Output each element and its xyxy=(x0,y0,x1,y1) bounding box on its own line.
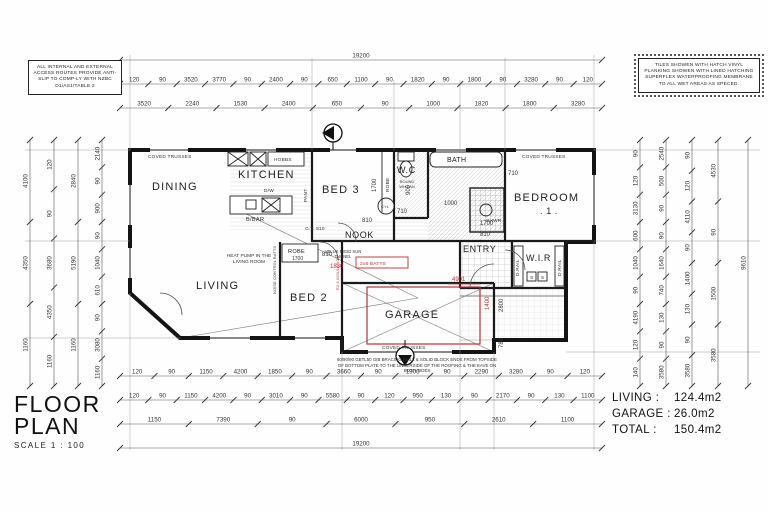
dim-1700-robe: 1700 xyxy=(372,178,378,192)
dim-value: 3770 xyxy=(212,77,226,84)
tiles-note: TILES SHOWEN WITH HATCH VINYL PLANKING S… xyxy=(638,58,760,93)
dim-value: 1500 xyxy=(711,286,718,300)
dim-value: 90 xyxy=(711,228,718,235)
dim-value: 2140 xyxy=(95,146,102,160)
dim-810-b: 810 xyxy=(362,218,373,224)
dim-value: 90 xyxy=(659,204,666,211)
extension-lines xyxy=(25,55,760,450)
dim-1000: 1000 xyxy=(444,201,458,207)
area-row-living: LIVING : 124.4m2 xyxy=(612,392,722,404)
dim-value: 3580 xyxy=(659,365,666,379)
drail-right-label: D.RAIL xyxy=(557,259,563,276)
dim-value: 90 xyxy=(244,77,251,84)
area-row-garage: GARAGE : 26.0m2 xyxy=(612,408,722,420)
dim-value: 120 xyxy=(580,369,591,376)
dim-value: 90 xyxy=(95,232,102,239)
breakfast-bar xyxy=(230,196,292,214)
dim-value: 3280 xyxy=(524,77,538,84)
dim-value: 90 xyxy=(159,393,166,400)
dim-value: 140 xyxy=(633,367,640,378)
dim-value: 1400 xyxy=(685,271,692,285)
dim-value: 90 xyxy=(244,393,251,400)
dim-value: 6000 xyxy=(354,417,368,424)
dim-value: 3580 xyxy=(711,348,718,362)
dim-value: 4100 xyxy=(23,174,30,188)
dim-value: 4530 xyxy=(711,163,718,177)
room-label-bath: BATH xyxy=(447,157,466,164)
dim-value: 90 xyxy=(358,393,365,400)
garage-area-label: GARAGE : xyxy=(612,408,674,420)
room-label-dining: DINING xyxy=(152,181,198,193)
robe-bed2-dim: 1700 xyxy=(292,256,303,262)
dim-value: 90 xyxy=(659,341,666,348)
dim-value: 650 xyxy=(327,77,338,84)
room-label-bed2: BED 2 xyxy=(290,292,328,304)
dim-value: 4110 xyxy=(685,210,692,224)
dim-value: 120 xyxy=(129,77,140,84)
dim-value: 90 xyxy=(159,77,166,84)
page-title: FLOOR PLAN xyxy=(14,394,114,438)
dim-value: 1850 xyxy=(268,369,282,376)
dim-value: 1160 xyxy=(23,338,30,352)
dim-value: 1040 xyxy=(95,256,102,270)
dim-value: 5190 xyxy=(71,256,78,270)
dim-value: 3580 xyxy=(685,363,692,377)
dim-780: 780 xyxy=(499,337,505,348)
dim-value: 120 xyxy=(129,393,140,400)
insulation-label: R2.6 INSULATION xyxy=(336,255,340,290)
dim-value: 3280 xyxy=(571,101,585,108)
dim-value: 3520 xyxy=(137,101,151,108)
dim-value: 120 xyxy=(384,393,395,400)
coved-trusses-label-1: COVED TRUSSES xyxy=(148,154,192,160)
toilet-cistern xyxy=(398,152,414,161)
dim-value: 120 xyxy=(633,339,640,350)
dim-value: 2840 xyxy=(71,174,78,188)
dim-value: 4350 xyxy=(23,256,30,270)
robe-bed3-label: ROBE xyxy=(385,178,391,192)
dim-value: 3520 xyxy=(184,77,198,84)
wh-fan-note: ROUND WH FAN xyxy=(396,179,418,189)
area-row-total: TOTAL : 150.4m2 xyxy=(612,424,722,436)
dim-value: 2170 xyxy=(496,393,510,400)
dim-value: 1800 xyxy=(468,77,482,84)
porch-lines xyxy=(460,288,566,340)
dim-value: 90 xyxy=(289,417,296,424)
dim-value: 90 xyxy=(547,369,554,376)
noise-batts-label: NOISE CONTROL BATTS xyxy=(273,246,277,294)
dim-value: 1160 xyxy=(71,338,78,352)
dim-value: 9610 xyxy=(741,256,748,270)
dim-value: 120 xyxy=(132,369,143,376)
room-label-wc: W.C xyxy=(397,165,416,175)
coved-trusses-label-2: COVED TRUSSES xyxy=(522,154,566,160)
dim-value: 1100 xyxy=(354,77,368,84)
dim-value: 90 xyxy=(95,177,102,184)
dim-value: 1150 xyxy=(199,369,213,376)
dim-value: 90 xyxy=(306,369,313,376)
dim-value: 90 xyxy=(443,77,450,84)
hobbs-label: HOBBS xyxy=(274,157,292,163)
room-label-entry: ENTRY xyxy=(463,244,496,254)
dim-value: 120 xyxy=(47,159,54,170)
floor-plan-sheet: 1920012090352037709024009065011009018209… xyxy=(0,0,768,512)
dim-value: 90 xyxy=(386,77,393,84)
dim-value: 90 xyxy=(95,314,102,321)
dim-value: 130 xyxy=(441,393,452,400)
dim-value: 120 xyxy=(583,77,594,84)
dim-value: 130 xyxy=(659,312,666,323)
dim-value: 90 xyxy=(471,393,478,400)
access-note: ALL INTERNAL AND EXTERNAL ACCESS ROUTES … xyxy=(28,60,122,95)
dim-value: 90 xyxy=(47,210,54,217)
dim-value: 1150 xyxy=(184,393,198,400)
dim-value: 130 xyxy=(554,393,565,400)
room-label-wir: W.I.R xyxy=(526,253,551,263)
total-area-value: 150.4m2 xyxy=(674,424,722,436)
dim-value: 120 xyxy=(685,180,692,191)
dim-value: 3080 xyxy=(95,338,102,352)
dim-4901-red: 4901 xyxy=(452,277,466,283)
robe-bed2-label: ROBE xyxy=(288,249,305,255)
dim-value: 19200 xyxy=(352,441,370,448)
dim-value: 3130 xyxy=(633,201,640,215)
total-area-label: TOTAL : xyxy=(612,424,674,436)
room-label-garage: GARAGE xyxy=(385,309,439,321)
dim-value: 610 xyxy=(95,285,102,296)
dim-1700-shower: 1700 xyxy=(480,221,494,227)
garage-bracing-note: 50/90/90 GBTL50 GIB BRACING WALL & SOLID… xyxy=(336,357,498,374)
dim-value: 1800 xyxy=(523,101,537,108)
dim-value: 900 xyxy=(95,203,102,214)
dim-value: 4200 xyxy=(212,393,226,400)
island-sink xyxy=(246,200,256,209)
living-area-value: 124.4m2 xyxy=(674,392,722,404)
dim-710-a: 710 xyxy=(397,209,408,215)
dim-value: 1640 xyxy=(659,256,666,270)
dim-value: 90 xyxy=(659,232,666,239)
dim-value: 130 xyxy=(685,303,692,314)
dim-value: 90 xyxy=(301,393,308,400)
dim-710-b: 710 xyxy=(508,171,519,177)
dim-value: 2540 xyxy=(659,146,666,160)
room-label-nook: NOOK xyxy=(345,230,374,240)
dim-value: 950 xyxy=(425,417,436,424)
dim-value: 1160 xyxy=(95,365,102,379)
dim-1400-red: 1400 xyxy=(485,296,491,310)
dim-value: 4190 xyxy=(633,310,640,324)
dim-1830-red: 1830 xyxy=(330,264,344,270)
room-label-bed3: BED 3 xyxy=(322,184,360,196)
dim-value: 90 xyxy=(382,101,389,108)
area-summary: LIVING : 124.4m2 GARAGE : 26.0m2 TOTAL :… xyxy=(612,392,722,440)
gt-810-label: G.T. 810 xyxy=(305,226,325,232)
dim-value: 90 xyxy=(499,77,506,84)
dim-value: 950 xyxy=(413,393,424,400)
dim-value: 3280 xyxy=(509,369,523,376)
dim-value: 1150 xyxy=(148,417,162,424)
dim-value: 3680 xyxy=(47,256,54,270)
dim-value: 600 xyxy=(633,230,640,241)
cyl-label: CYL xyxy=(381,204,390,209)
dim-value: 90 xyxy=(528,393,535,400)
velux-note: VELUX RIGID SUN TUNNEL xyxy=(324,249,362,260)
shelf-2-label: S xyxy=(541,275,544,281)
dim-value: 90 xyxy=(556,77,563,84)
dim-value: 2240 xyxy=(185,101,199,108)
dim-value: 2610 xyxy=(492,417,506,424)
dim-value: 1820 xyxy=(411,77,425,84)
dim-value: 4350 xyxy=(47,305,54,319)
room-label-bedroom1-number: . 1 . xyxy=(540,206,558,216)
dim-value: 740 xyxy=(659,285,666,296)
dim-value: 2400 xyxy=(282,101,296,108)
room-label-bedroom1: BEDROOM xyxy=(514,192,579,204)
dim-value: 1100 xyxy=(581,393,595,400)
dim-value: 4200 xyxy=(234,369,248,376)
dim-value: 2400 xyxy=(269,77,283,84)
dim-value: 1820 xyxy=(475,101,489,108)
dim-value: 500 xyxy=(659,175,666,186)
dw-label: D/W xyxy=(264,188,274,194)
pantry-label: PANT xyxy=(303,189,309,202)
coved-trusses-label-3: COVED TRUSSES xyxy=(382,345,426,351)
dim-2800: 2800 xyxy=(499,298,505,312)
dim-value: 90 xyxy=(168,369,175,376)
dim-value: 1000 xyxy=(426,101,440,108)
dim-value: 1100 xyxy=(561,417,575,424)
living-area-label: LIVING : xyxy=(612,392,674,404)
dim-value: 90 xyxy=(685,336,692,343)
dim-value: 1530 xyxy=(234,101,248,108)
bbar-label: B/BAR xyxy=(246,217,264,223)
dim-value: 120 xyxy=(633,175,640,186)
heat-pump-note: HEAT PUMP IN THE LIVING ROOM xyxy=(222,254,276,266)
dim-value: 90 xyxy=(301,77,308,84)
dim-810-c: 810 xyxy=(480,232,491,238)
dim-value: 90 xyxy=(685,151,692,158)
garage-area-value: 26.0m2 xyxy=(674,408,715,420)
dim-value: 5580 xyxy=(326,393,340,400)
dim-value: 650 xyxy=(332,101,343,108)
room-label-kitchen: KITCHEN xyxy=(238,169,295,181)
shelf-1-label: S xyxy=(530,275,533,281)
title-block: FLOOR PLAN SCALE 1 : 100 xyxy=(14,394,114,450)
dim-value: 90 xyxy=(633,286,640,293)
dim-value: 90 xyxy=(633,150,640,157)
dim-value: 7390 xyxy=(216,417,230,424)
drail-left-label: D.RAIL xyxy=(515,259,521,276)
room-label-living: LIVING xyxy=(196,280,239,292)
dim-value: 3010 xyxy=(269,393,283,400)
dim-value: 19200 xyxy=(352,53,370,60)
dim-value: 1160 xyxy=(47,354,54,368)
dim-value: 90 xyxy=(685,244,692,251)
scale-label: SCALE 1 : 100 xyxy=(14,441,114,450)
batts-label: 2x6 BATTS xyxy=(360,261,386,267)
dim-value: 1040 xyxy=(633,256,640,270)
